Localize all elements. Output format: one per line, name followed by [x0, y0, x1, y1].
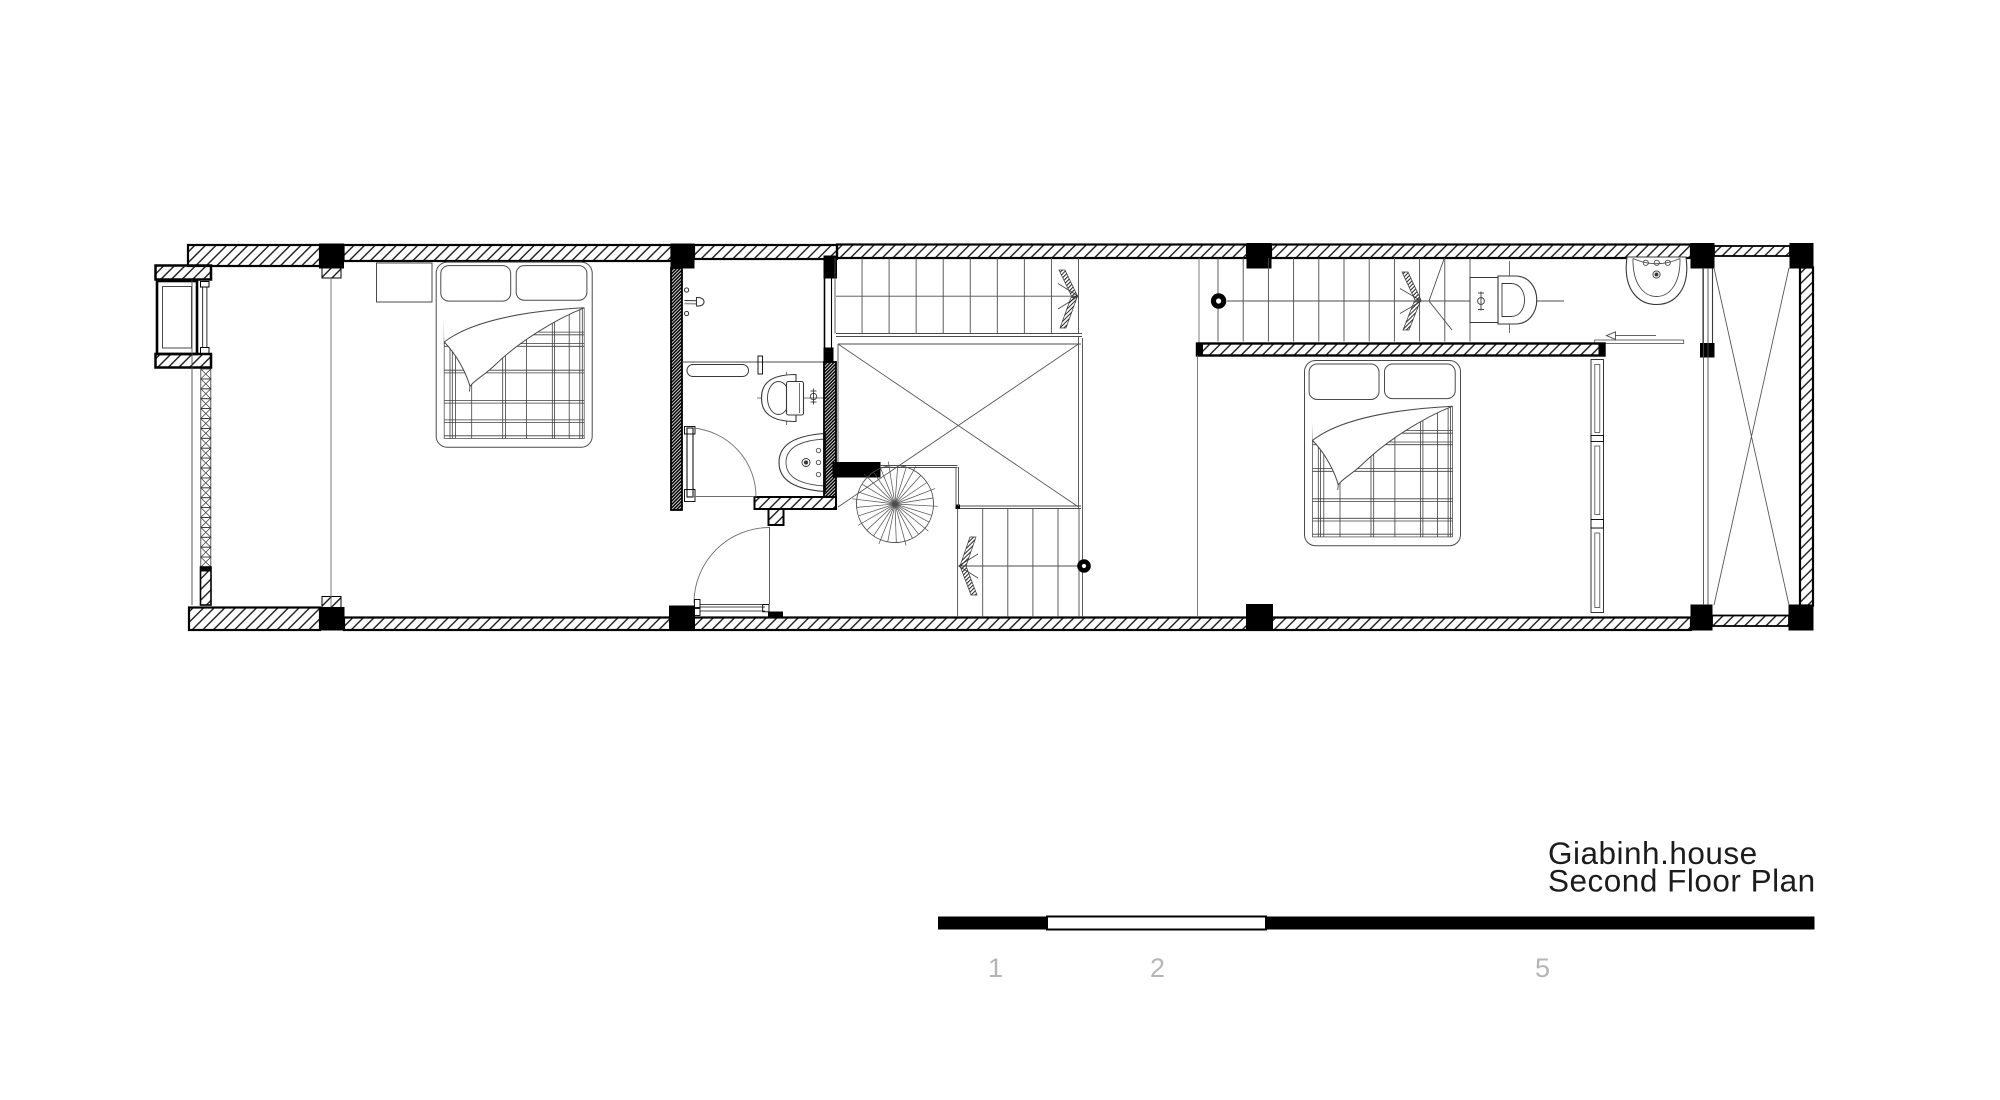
svg-text:5: 5: [1535, 953, 1550, 983]
svg-text:1: 1: [988, 953, 1003, 983]
svg-text:Second Floor Plan: Second Floor Plan: [1548, 863, 1816, 899]
svg-text:2: 2: [1150, 953, 1165, 983]
